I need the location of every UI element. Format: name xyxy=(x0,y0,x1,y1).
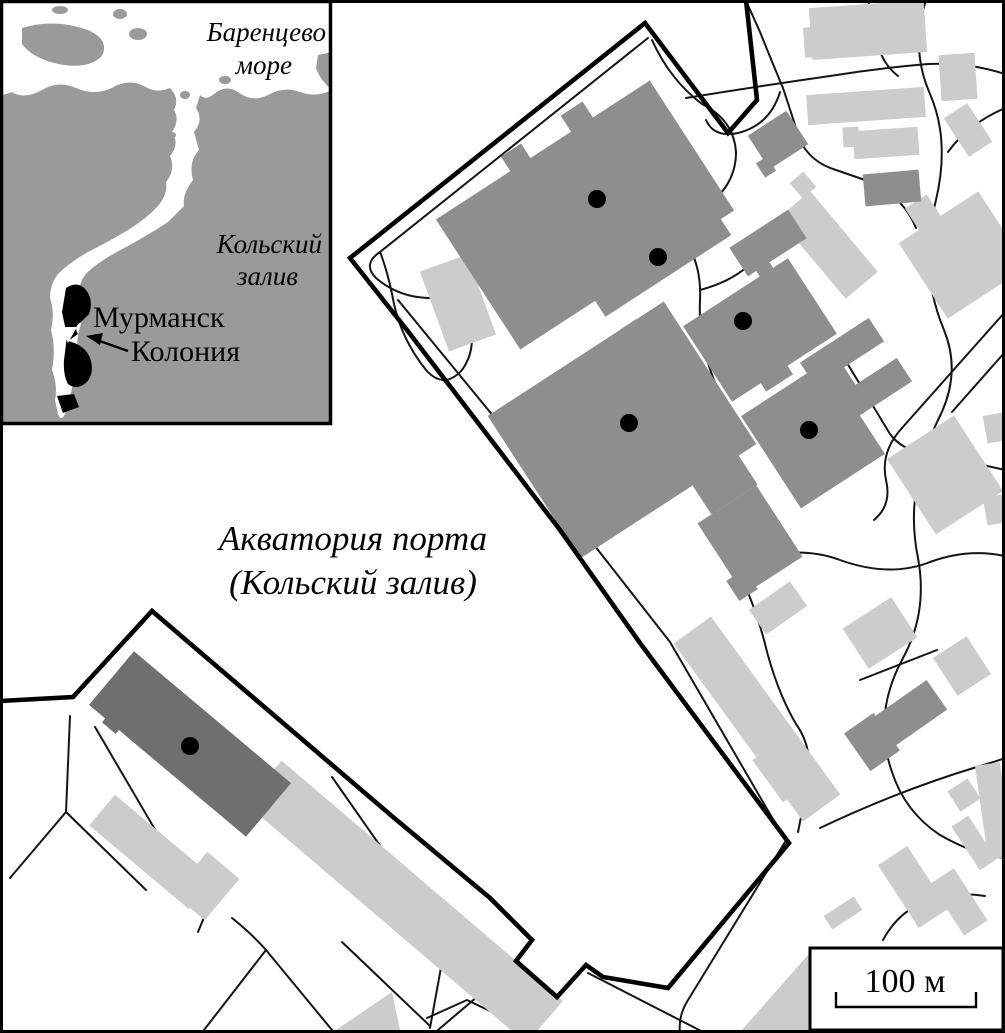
water-label-line2: (Кольский залив) xyxy=(229,563,477,602)
building xyxy=(806,87,926,125)
road xyxy=(588,973,705,1033)
city-label: Мурманск xyxy=(93,301,225,334)
road xyxy=(700,266,748,290)
building xyxy=(887,415,1003,534)
building xyxy=(336,992,400,1030)
port-map-svg: Акватория порта (Кольский залив) 100 м xyxy=(0,0,1005,1033)
inset-map: Баренцево море Кольский залив Мурманск К… xyxy=(0,0,332,425)
water-label-line1: Акватория порта xyxy=(217,519,487,558)
bay-label-line1: Кольский xyxy=(216,229,323,259)
island xyxy=(180,91,190,99)
sea-label-line1: Баренцево xyxy=(206,17,326,47)
sea-label-line2: море xyxy=(235,50,292,80)
sample-point-dot xyxy=(734,312,752,330)
sample-point-dot xyxy=(649,248,667,266)
island xyxy=(52,6,68,14)
building xyxy=(824,896,863,929)
scale-bar-label: 100 м xyxy=(864,963,945,1000)
building xyxy=(947,778,980,811)
building xyxy=(245,761,563,1033)
building xyxy=(842,126,859,147)
sample-point-dot xyxy=(620,414,638,432)
road xyxy=(204,950,266,1030)
building xyxy=(843,597,918,669)
sample-point-dot xyxy=(588,190,606,208)
map-figure: Акватория порта (Кольский залив) 100 м xyxy=(0,0,1005,1033)
building xyxy=(938,53,977,101)
scale-bar: 100 м xyxy=(810,948,1003,1030)
sample-point-dot xyxy=(800,421,818,439)
sample-point-dot xyxy=(181,737,199,755)
road xyxy=(652,40,702,104)
water-area-label: Акватория порта (Кольский залив) xyxy=(217,519,487,602)
island xyxy=(219,76,231,84)
island xyxy=(145,137,155,143)
island xyxy=(129,28,147,40)
building xyxy=(853,127,920,159)
colony-label: Колония xyxy=(131,335,240,368)
building xyxy=(748,111,808,170)
building xyxy=(933,636,991,696)
building xyxy=(983,412,1005,443)
road xyxy=(10,716,70,878)
building xyxy=(863,170,922,207)
building xyxy=(749,581,807,634)
building xyxy=(983,494,1005,525)
island xyxy=(113,9,127,19)
building xyxy=(741,947,815,1031)
island xyxy=(168,132,176,138)
building xyxy=(803,26,827,57)
bay-label-line2: залив xyxy=(236,261,298,291)
road xyxy=(952,352,1005,412)
island xyxy=(154,116,166,124)
